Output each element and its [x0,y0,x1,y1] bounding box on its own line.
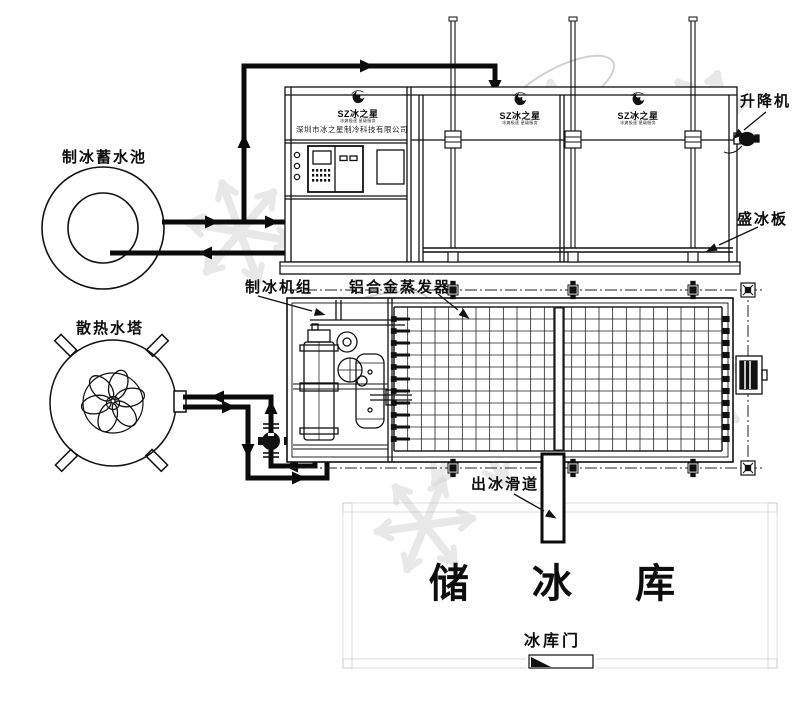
cooling-tower-drawing [50,334,186,471]
label-water-pool: 制冰蓄水池 [62,146,147,167]
brand-tagline: 冰爽极速 星级服务 [474,121,566,125]
label-ice-chute: 出冰滑道 [471,473,539,494]
brand-logo-3: SZ冰之星 冰爽极速 星级服务 [592,92,684,125]
label-storage-door: 冰库门 [524,627,581,651]
label-evaporator: 铝合金蒸发器 [349,276,451,297]
swan-logo-icon [511,92,529,107]
storage-door-drawing [526,655,596,670]
machine-plan [285,282,767,477]
label-ice-plate: 盛冰板 [737,208,788,229]
brand-logo-2: SZ冰之星 冰爽极速 星级服务 [474,92,566,125]
ice-chute-overlay [542,454,564,542]
swan-logo-icon [349,90,367,105]
label-elevator: 升降机 [740,90,791,111]
water-pool-drawing [42,167,164,289]
fan-blades-icon [80,368,146,434]
company-name: 深圳市冰之星制冷科技有限公司 [292,124,412,135]
brand-logo-1: SZ冰之星 冰爽极速 星级服务 [312,90,404,123]
brand-tagline: 冰爽极速 星级服务 [592,121,684,125]
label-ice-storage: 储 冰 库 [425,551,705,609]
label-cooling-tower: 散热水塔 [76,317,144,338]
brand-tagline: 冰爽极速 星级服务 [312,119,404,123]
machine-elevation [280,17,759,274]
plan-side-motor-icon [736,356,767,394]
diagram-canvas: 制冰蓄水池 散热水塔 制冰机组 铝合金蒸发器 升降机 盛冰板 出冰滑道 储 冰 … [0,0,800,704]
swan-logo-icon [629,92,647,107]
label-ice-machine-unit: 制冰机组 [245,276,313,297]
